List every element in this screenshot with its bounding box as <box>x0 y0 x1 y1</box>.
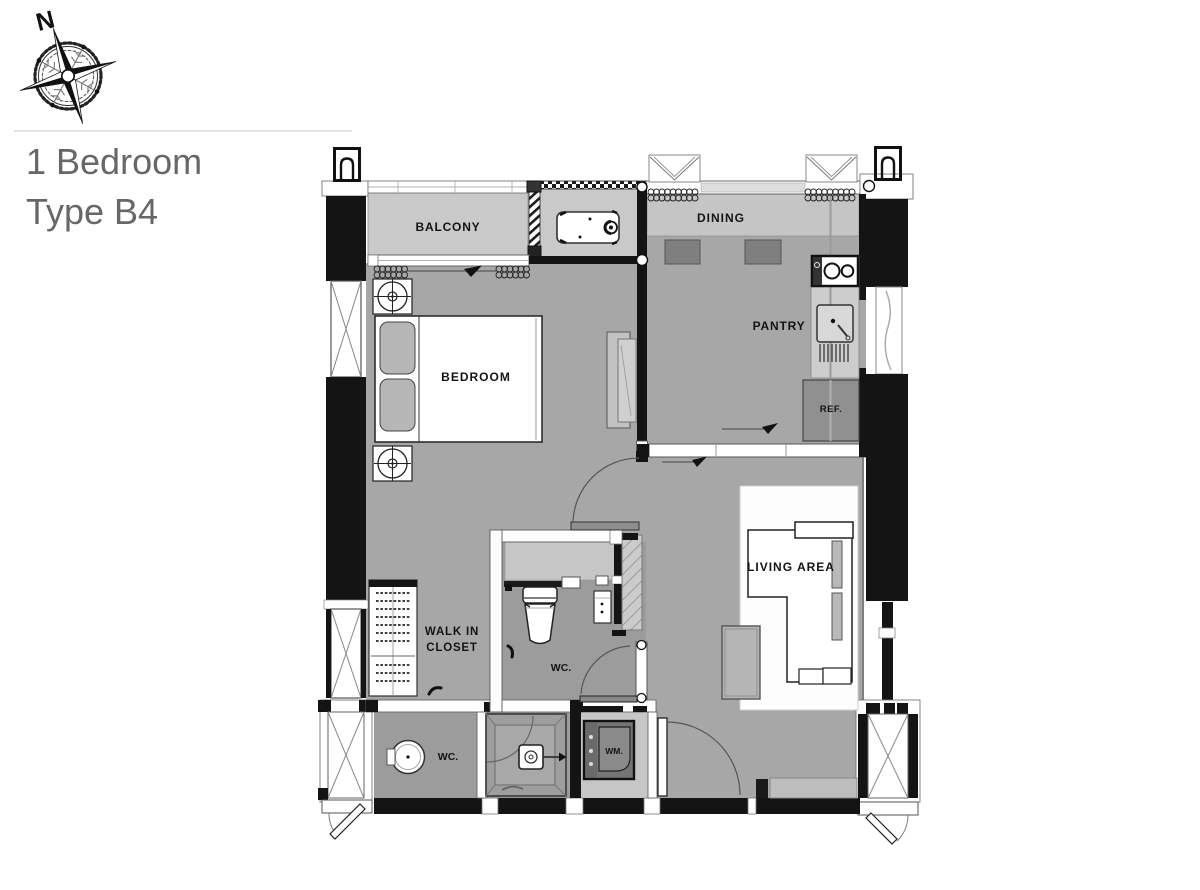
svg-text:BALCONY: BALCONY <box>416 220 481 234</box>
svg-text:BEDROOM: BEDROOM <box>441 370 511 384</box>
svg-text:1 Bedroom: 1 Bedroom <box>26 141 202 182</box>
svg-text:LIVING AREA: LIVING AREA <box>747 560 835 574</box>
svg-text:DINING: DINING <box>697 211 745 225</box>
svg-text:Type B4: Type B4 <box>26 191 158 232</box>
svg-text:PANTRY: PANTRY <box>753 319 806 333</box>
svg-text:WALK IN: WALK IN <box>425 626 479 638</box>
svg-text:REF.: REF. <box>820 404 843 415</box>
svg-text:WC.: WC. <box>551 662 571 674</box>
svg-text:CLOSET: CLOSET <box>426 642 477 654</box>
svg-text:WM.: WM. <box>605 746 622 756</box>
svg-text:WC.: WC. <box>438 751 458 763</box>
